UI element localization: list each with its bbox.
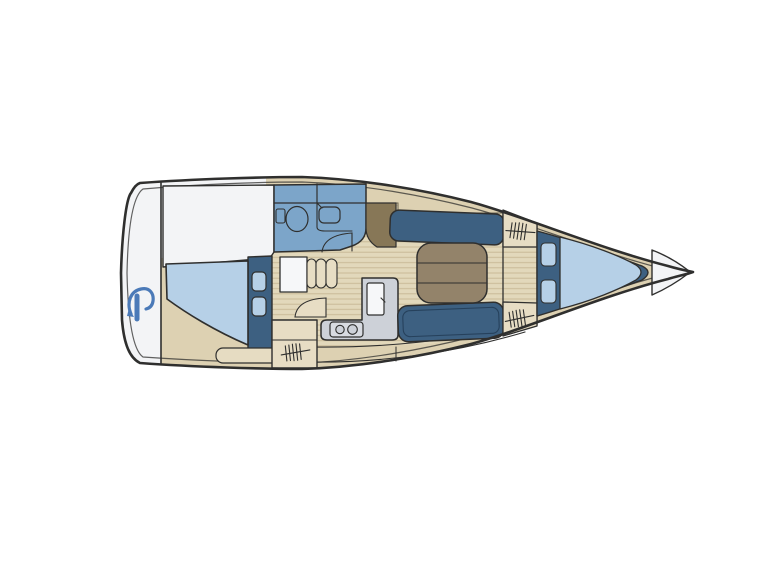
bow-locker [652,250,690,295]
saloon-table [417,243,487,303]
step-2 [316,259,326,288]
settee-top [389,210,504,246]
stove-icon [330,322,363,337]
toilet-tank [276,209,285,223]
table-top [417,243,487,303]
locker-bottom [503,302,537,336]
chart-box [280,257,307,292]
step-1 [307,259,316,288]
page [0,0,768,576]
cockpit-bench [163,185,274,267]
locker-top [503,210,537,247]
step-3 [326,259,337,288]
yacht-layout-diagram [0,0,768,576]
toilet-bowl [286,207,308,232]
stove-top [330,322,363,337]
aft-cabin-pillow-2 [252,297,266,316]
sink-basin [319,207,340,223]
stove-burner-2 [348,325,358,335]
v-berth-pillow-2 [541,280,556,303]
stove-burner-1 [336,325,344,333]
v-berth-pillow-1 [541,243,556,266]
aft-cabin-pillow-1 [252,272,266,291]
companionway-steps [307,259,337,288]
